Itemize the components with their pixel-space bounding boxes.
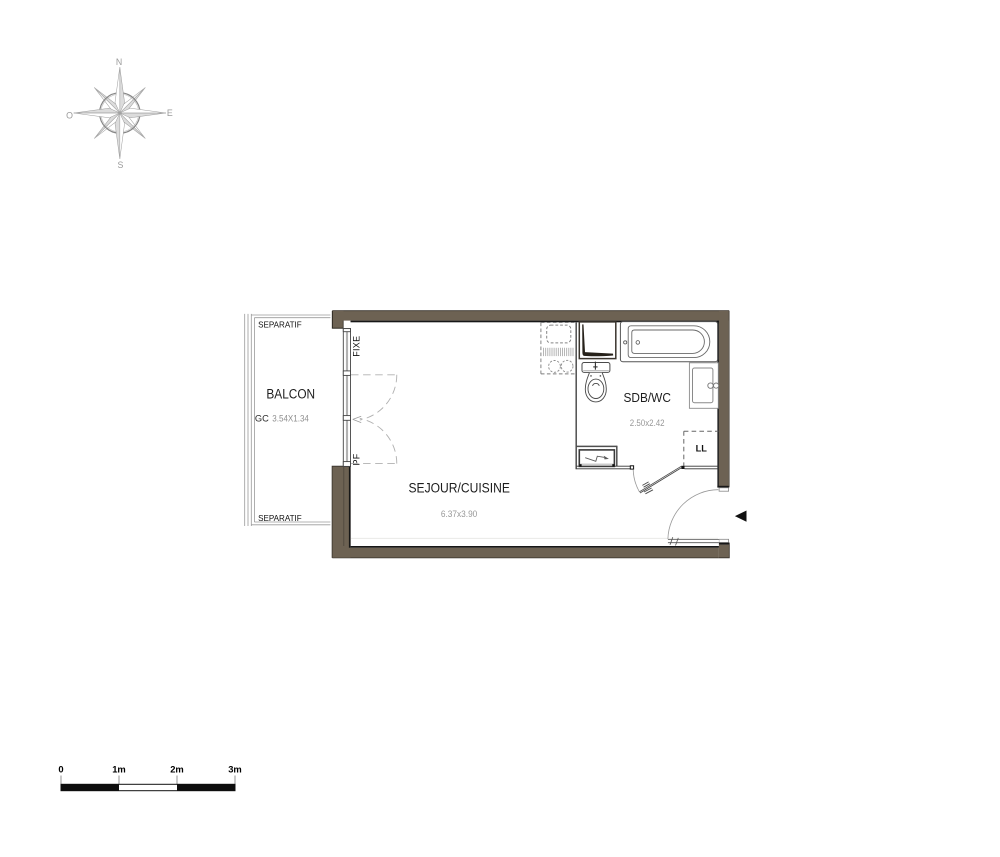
- svg-text:GC: GC: [255, 413, 269, 423]
- svg-text:2m: 2m: [170, 764, 184, 775]
- svg-text:BALCON: BALCON: [266, 387, 315, 403]
- svg-text:S: S: [117, 160, 123, 170]
- svg-text:FIXE: FIXE: [352, 336, 362, 357]
- svg-text:3m: 3m: [228, 764, 242, 775]
- svg-text:N: N: [116, 57, 122, 67]
- svg-text:SEPARATIF: SEPARATIF: [258, 513, 302, 523]
- svg-text:1m: 1m: [112, 764, 126, 775]
- svg-text:3.54X1.34: 3.54X1.34: [272, 413, 309, 423]
- svg-text:SEPARATIF: SEPARATIF: [258, 320, 302, 330]
- svg-text:SDB/WC: SDB/WC: [624, 390, 672, 405]
- svg-text:E: E: [167, 108, 173, 118]
- svg-text:6.37x3.90: 6.37x3.90: [441, 508, 477, 519]
- svg-text:2.50x2.42: 2.50x2.42: [630, 417, 665, 428]
- svg-text:0: 0: [58, 764, 63, 775]
- svg-text:LL: LL: [696, 443, 708, 453]
- svg-text:O: O: [66, 110, 73, 120]
- svg-text:SEJOUR/CUISINE: SEJOUR/CUISINE: [409, 481, 510, 497]
